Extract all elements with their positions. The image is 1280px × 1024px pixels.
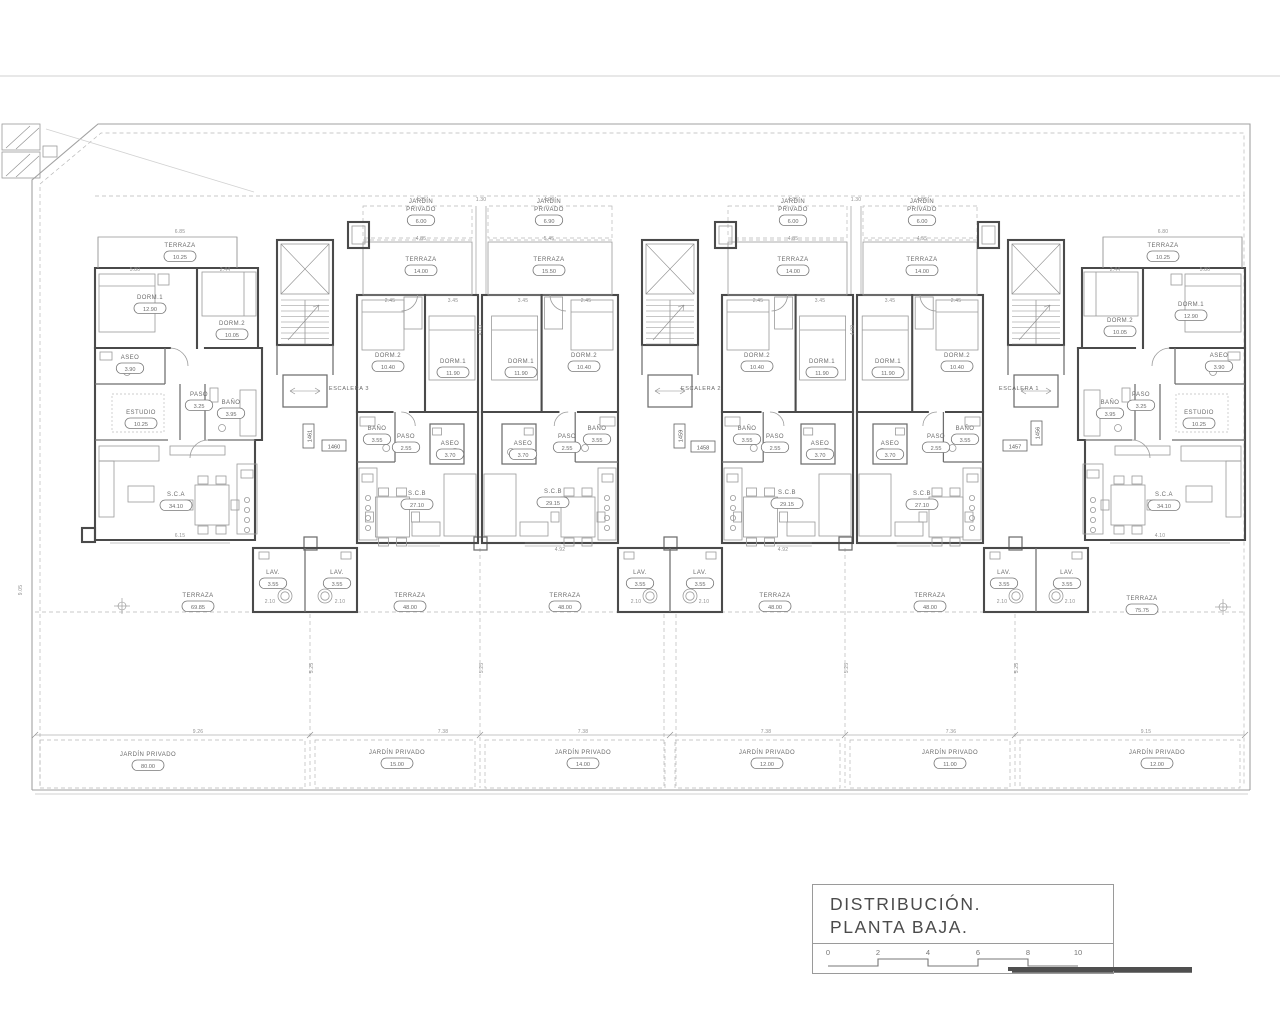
title-block-heavy-rule [1008,967,1192,971]
svg-text:1458: 1458 [697,446,709,452]
room-label: JARDÍN PRIVADO80.00 [120,751,176,771]
svg-text:10.25: 10.25 [173,255,187,261]
svg-text:LAV.: LAV. [330,570,344,576]
dimension-text: 4.00 [478,325,484,336]
svg-text:48.00: 48.00 [558,605,572,611]
dimension-text: 7.38 [438,729,449,735]
svg-text:BAÑO: BAÑO [368,425,387,432]
svg-text:10.25: 10.25 [1156,255,1170,261]
svg-text:29.15: 29.15 [546,501,560,507]
svg-text:11.90: 11.90 [446,371,460,377]
svg-text:ESTUDIO: ESTUDIO [1184,410,1214,416]
svg-text:10.05: 10.05 [225,333,239,339]
svg-text:3.55: 3.55 [592,438,603,444]
scale-tick: 2 [876,948,880,957]
svg-text:DORM.1: DORM.1 [1178,302,1204,308]
room-label: LAV.3.55 [1053,570,1080,589]
svg-text:S.C.A: S.C.A [1155,492,1173,498]
svg-text:1459: 1459 [679,430,685,442]
svg-text:ESTUDIO: ESTUDIO [126,410,156,416]
svg-text:S.C.B: S.C.B [778,490,796,496]
svg-text:3.25: 3.25 [1136,404,1147,410]
svg-text:ASEO: ASEO [121,355,139,361]
site-corner-structures [2,124,57,178]
svg-text:3.25: 3.25 [194,404,205,410]
dimension-text: 4.55 [917,236,928,242]
dimension-text: 4.35 [788,197,799,203]
dimension-text: 2.45 [753,298,764,304]
svg-text:JARDÍN PRIVADO: JARDÍN PRIVADO [369,749,425,756]
svg-text:3.70: 3.70 [885,453,896,459]
svg-text:ASEO: ASEO [881,441,899,447]
site-boundary-offset [40,133,1244,786]
room-label: LAV.3.55 [686,570,713,589]
private-garden-plots [40,740,1240,788]
dimension-text: 3.45 [518,298,529,304]
room-label: S.C.B29.15 [771,490,803,509]
room-label: S.C.A34.10 [160,492,192,511]
unit-number-plate: 1461 [303,424,314,448]
room-label: DORM.111.90 [437,359,469,378]
room-label: PASO2.55 [761,434,788,453]
scale-tick: 10 [1074,948,1082,957]
svg-text:DORM.2: DORM.2 [571,353,597,359]
room-label: BAÑO3.55 [583,425,610,445]
dimension-text: 3.45 [815,298,826,304]
dimension-text: 2.10 [335,599,346,605]
svg-text:PRIVADO: PRIVADO [907,207,937,213]
svg-text:PRIVADO: PRIVADO [534,207,564,213]
svg-text:S.C.B: S.C.B [408,491,426,497]
svg-text:75.75: 75.75 [1135,608,1149,614]
dimension-text: 7.38 [578,729,589,735]
room-label: DORM.112.90 [134,295,166,314]
room-label: DORM.210.05 [216,321,248,340]
svg-text:3.55: 3.55 [332,582,343,588]
room-label: DORM.111.90 [872,359,904,378]
svg-text:14.00: 14.00 [915,269,929,275]
stair-core [978,222,1088,612]
svg-text:3.90: 3.90 [1214,365,1225,371]
svg-text:TERRAZA: TERRAZA [1147,243,1178,249]
svg-text:3.90: 3.90 [125,367,136,373]
svg-text:BAÑO: BAÑO [588,425,607,432]
room-label: PASO3.25 [1127,392,1154,411]
dimension-text: 2.10 [265,599,276,605]
room-label: TERRAZA48.00 [549,593,581,612]
svg-text:PASO: PASO [190,392,208,398]
room-label: TERRAZA14.00 [777,257,809,276]
svg-text:15.00: 15.00 [390,762,404,768]
room-label: DORM.210.40 [941,353,973,372]
garden-dimension-line [32,732,1248,738]
svg-text:TERRAZA: TERRAZA [777,257,808,263]
dimension-text: 2.44 [220,267,231,273]
svg-text:3.55: 3.55 [999,582,1010,588]
unit-a-step [82,528,95,542]
svg-text:TERRAZA: TERRAZA [759,593,790,599]
room-label: DORM.210.05 [1104,318,1136,337]
svg-text:6.00: 6.00 [416,219,427,225]
svg-text:11.00: 11.00 [943,762,957,768]
room-label: TERRAZA69.85 [182,593,214,612]
dimension-text: 2.10 [631,599,642,605]
svg-text:DORM.1: DORM.1 [875,359,901,365]
svg-text:15.50: 15.50 [542,269,556,275]
survey-cross [1215,599,1231,615]
svg-text:69.85: 69.85 [191,605,205,611]
svg-text:2.55: 2.55 [562,446,573,452]
dimension-text: 5.45 [544,236,555,242]
dimension-text: 6.85 [175,229,186,235]
svg-text:27.10: 27.10 [410,503,424,509]
svg-text:TERRAZA: TERRAZA [533,257,564,263]
unit-number-plate: 1459 [674,424,685,448]
dimension-text: 2.10 [1065,599,1076,605]
dimension-text: 9.15 [1141,729,1152,735]
stair-label: ESCALERA 1 [999,386,1039,392]
svg-text:34.10: 34.10 [169,504,183,510]
dimension-text: 7.38 [761,729,772,735]
site-boundary [32,124,1250,790]
dimension-text: 4.35 [416,197,427,203]
svg-text:6.00: 6.00 [788,219,799,225]
svg-text:3.55: 3.55 [268,582,279,588]
svg-text:TERRAZA: TERRAZA [914,593,945,599]
svg-text:PASO: PASO [1132,392,1150,398]
title-block: DISTRIBUCIÓN. PLANTA BAJA. 0246810 [812,884,1114,974]
drawing-title-line1: DISTRIBUCIÓN. [830,893,1113,916]
floor-plan: TERRAZA10.25DORM.112.90DORM.210.05ASEO3.… [0,0,1280,1024]
svg-text:11.90: 11.90 [514,371,528,377]
svg-text:TERRAZA: TERRAZA [182,593,213,599]
svg-text:TERRAZA: TERRAZA [394,593,425,599]
svg-text:3.55: 3.55 [742,438,753,444]
svg-text:11.90: 11.90 [881,371,895,377]
room-label: ASEO3.70 [876,441,903,460]
room-label: BAÑO3.55 [733,425,760,445]
svg-text:BAÑO: BAÑO [222,399,241,406]
room-label: LAV.3.55 [626,570,653,589]
svg-text:3.55: 3.55 [635,582,646,588]
dimension-text: 4.00 [850,325,856,336]
svg-text:ASEO: ASEO [514,441,532,447]
dimension-text: 5.25 [309,663,315,674]
room-label: DORM.210.40 [568,353,600,372]
svg-text:3.55: 3.55 [960,438,971,444]
room-label: PASO2.55 [553,434,580,453]
svg-text:3.70: 3.70 [815,453,826,459]
svg-text:LAV.: LAV. [1060,570,1074,576]
svg-text:48.00: 48.00 [768,605,782,611]
svg-text:3.70: 3.70 [518,453,529,459]
scale-bar: 0246810 [813,944,1113,981]
svg-text:TERRAZA: TERRAZA [1126,596,1157,602]
dimension-text: 5.25 [479,663,485,674]
dimension-text: 4.55 [917,197,928,203]
svg-text:ASEO: ASEO [1210,353,1228,359]
stair-core [253,222,369,612]
svg-text:1460: 1460 [328,445,340,451]
dimension-text: 2.45 [385,298,396,304]
svg-text:10.40: 10.40 [950,365,964,371]
room-label: ASEO3.90 [1205,353,1232,372]
svg-text:48.00: 48.00 [923,605,937,611]
room-label: DORM.210.40 [741,353,773,372]
svg-text:10.40: 10.40 [381,365,395,371]
svg-text:14.00: 14.00 [414,269,428,275]
svg-text:12.00: 12.00 [760,762,774,768]
room-label: TERRAZA10.25 [164,243,196,262]
room-label: PASO2.55 [922,434,949,453]
svg-text:14.00: 14.00 [576,762,590,768]
svg-text:DORM.1: DORM.1 [440,359,466,365]
stair-label: ESCALERA 3 [329,386,369,392]
svg-text:LAV.: LAV. [997,570,1011,576]
room-label: S.C.B27.10 [401,491,433,510]
dimension-text: 2.44 [1110,267,1121,273]
dimension-text: 4.92 [555,547,566,553]
svg-text:29.15: 29.15 [780,502,794,508]
svg-text:27.10: 27.10 [915,503,929,509]
dimension-text: 6.80 [1158,229,1169,235]
svg-text:BAÑO: BAÑO [1101,399,1120,406]
svg-text:LAV.: LAV. [266,570,280,576]
svg-text:10.25: 10.25 [1192,422,1206,428]
svg-text:TERRAZA: TERRAZA [906,257,937,263]
stair-label: ESCALERA 2 [681,386,721,392]
svg-text:12.00: 12.00 [1150,762,1164,768]
room-label: LAV.3.55 [323,570,350,589]
room-label: ASEO3.90 [116,355,143,374]
svg-text:S.C.A: S.C.A [167,492,185,498]
svg-text:S.C.B: S.C.B [913,491,931,497]
svg-text:10.40: 10.40 [577,365,591,371]
svg-text:48.00: 48.00 [403,605,417,611]
svg-text:DORM.1: DORM.1 [508,359,534,365]
svg-text:BAÑO: BAÑO [956,425,975,432]
room-label: ESTUDIO10.25 [1183,410,1215,429]
svg-text:2.55: 2.55 [931,446,942,452]
room-label: JARDÍN PRIVADO14.00 [555,749,611,769]
room-label: BAÑO3.95 [217,399,244,419]
scale-tick: 8 [1026,948,1030,957]
svg-text:DORM.1: DORM.1 [809,359,835,365]
svg-text:JARDÍN PRIVADO: JARDÍN PRIVADO [555,749,611,756]
dimension-text: 2.10 [997,599,1008,605]
room-label: DORM.111.90 [505,359,537,378]
unit-number-plate: 1460 [322,440,346,451]
svg-text:DORM.2: DORM.2 [744,353,770,359]
survey-cross [114,598,130,614]
room-label: ASEO3.70 [509,441,536,460]
drawing-sheet: TERRAZA10.25DORM.112.90DORM.210.05ASEO3.… [0,0,1280,1024]
svg-text:DORM.2: DORM.2 [219,321,245,327]
svg-text:PASO: PASO [397,434,415,440]
room-label: JARDÍN PRIVADO12.00 [1129,749,1185,769]
svg-text:3.55: 3.55 [1062,582,1073,588]
svg-text:10.40: 10.40 [750,365,764,371]
dimension-text: 4.92 [778,547,789,553]
dimension-text: 7.36 [946,729,957,735]
room-label: S.C.B27.10 [906,491,938,510]
room-label: S.C.A34.10 [1148,492,1180,511]
room-label: LAV.3.55 [990,570,1017,589]
svg-text:2.55: 2.55 [770,446,781,452]
room-label: PASO2.55 [392,434,419,453]
room-label: TERRAZA48.00 [914,593,946,612]
svg-text:BAÑO: BAÑO [738,425,757,432]
room-label: TERRAZA10.25 [1147,243,1179,262]
svg-text:PRIVADO: PRIVADO [406,207,436,213]
survey-diagonal [46,129,254,192]
svg-text:3.70: 3.70 [445,453,456,459]
svg-text:TERRAZA: TERRAZA [164,243,195,249]
dimension-text: 5.80 [130,267,141,273]
svg-text:PASO: PASO [927,434,945,440]
scale-tick: 4 [926,948,930,957]
dimension-text: 1.30 [476,197,487,203]
svg-text:11.90: 11.90 [815,371,829,377]
svg-text:3.95: 3.95 [226,412,237,418]
dimension-text: 5.80 [1200,267,1211,273]
svg-text:10.25: 10.25 [134,422,148,428]
dimension-text: 1.30 [851,197,862,203]
room-label: TERRAZA75.75 [1126,596,1158,615]
room-label: TERRAZA14.00 [405,257,437,276]
svg-text:3.95: 3.95 [1105,412,1116,418]
dimension-text: 5.25 [844,663,850,674]
dimension-text: 3.45 [448,298,459,304]
drawing-title: DISTRIBUCIÓN. PLANTA BAJA. [813,885,1113,941]
dimension-text: 4.10 [1155,533,1166,539]
dimension-text: 2.45 [951,298,962,304]
svg-text:80.00: 80.00 [141,764,155,770]
room-label: TERRAZA48.00 [759,593,791,612]
room-label: JARDÍN PRIVADO12.00 [739,749,795,769]
drawing-title-line2: PLANTA BAJA. [830,916,1113,939]
dimension-text: 5.25 [1014,663,1020,674]
dimension-text: 2.45 [581,298,592,304]
room-label: DORM.210.40 [372,353,404,372]
svg-text:12.90: 12.90 [143,307,157,313]
svg-text:DORM.2: DORM.2 [944,353,970,359]
room-label: TERRAZA14.00 [906,257,938,276]
svg-text:14.00: 14.00 [786,269,800,275]
stair-core [618,222,736,612]
dimension-text: 9.05 [18,585,24,596]
svg-text:6.90: 6.90 [544,219,555,225]
room-label: TERRAZA15.50 [533,257,565,276]
svg-text:1461: 1461 [308,430,314,442]
svg-text:6.00: 6.00 [917,219,928,225]
svg-text:S.C.B: S.C.B [544,489,562,495]
svg-text:1457: 1457 [1009,445,1021,451]
room-label: PASO3.25 [185,392,212,411]
room-label: ASEO3.70 [806,441,833,460]
svg-text:ASEO: ASEO [441,441,459,447]
svg-text:3.55: 3.55 [695,582,706,588]
unit-number-plate: 1457 [1003,440,1027,451]
svg-text:3.55: 3.55 [372,438,383,444]
dimension-text: 4.85 [788,236,799,242]
unit-number-plate: 1456 [1031,421,1042,445]
room-label: BAÑO3.55 [363,425,390,445]
room-label: DORM.111.90 [806,359,838,378]
svg-text:PASO: PASO [766,434,784,440]
scale-tick: 6 [976,948,980,957]
svg-text:JARDÍN PRIVADO: JARDÍN PRIVADO [922,749,978,756]
room-label: ESTUDIO10.25 [125,410,157,429]
dimension-text: 4.90 [544,197,555,203]
room-label: DORM.112.90 [1175,302,1207,321]
dimension-text: 9.26 [193,729,204,735]
room-label: TERRAZA48.00 [394,593,426,612]
scale-tick: 0 [826,948,830,957]
svg-text:34.10: 34.10 [1157,504,1171,510]
svg-text:TERRAZA: TERRAZA [549,593,580,599]
svg-text:LAV.: LAV. [693,570,707,576]
room-label: BAÑO3.95 [1096,399,1123,419]
unit-number-plate: 1458 [691,441,715,452]
svg-text:DORM.2: DORM.2 [1107,318,1133,324]
room-label: BAÑO3.55 [951,425,978,445]
svg-text:JARDÍN PRIVADO: JARDÍN PRIVADO [1129,749,1185,756]
svg-text:JARDÍN PRIVADO: JARDÍN PRIVADO [120,751,176,758]
svg-text:10.05: 10.05 [1113,330,1127,336]
svg-text:ASEO: ASEO [811,441,829,447]
svg-text:TERRAZA: TERRAZA [405,257,436,263]
scale-bar-steps [828,959,1078,966]
svg-text:12.90: 12.90 [1184,314,1198,320]
units-layer [95,206,1245,612]
room-label: JARDÍN PRIVADO11.00 [922,749,978,769]
dimension-text: 6.15 [175,533,186,539]
svg-text:DORM.1: DORM.1 [137,295,163,301]
svg-text:PRIVADO: PRIVADO [778,207,808,213]
room-label: JARDÍN PRIVADO15.00 [369,749,425,769]
svg-text:PASO: PASO [558,434,576,440]
dimension-text: 2.10 [699,599,710,605]
dimension-text: 3.45 [885,298,896,304]
room-label: LAV.3.55 [259,570,286,589]
svg-text:JARDÍN PRIVADO: JARDÍN PRIVADO [739,749,795,756]
dimension-text: 4.85 [416,236,427,242]
svg-text:DORM.2: DORM.2 [375,353,401,359]
room-label: ASEO3.70 [436,441,463,460]
svg-text:2.55: 2.55 [401,446,412,452]
svg-text:LAV.: LAV. [633,570,647,576]
svg-text:1456: 1456 [1036,427,1042,439]
